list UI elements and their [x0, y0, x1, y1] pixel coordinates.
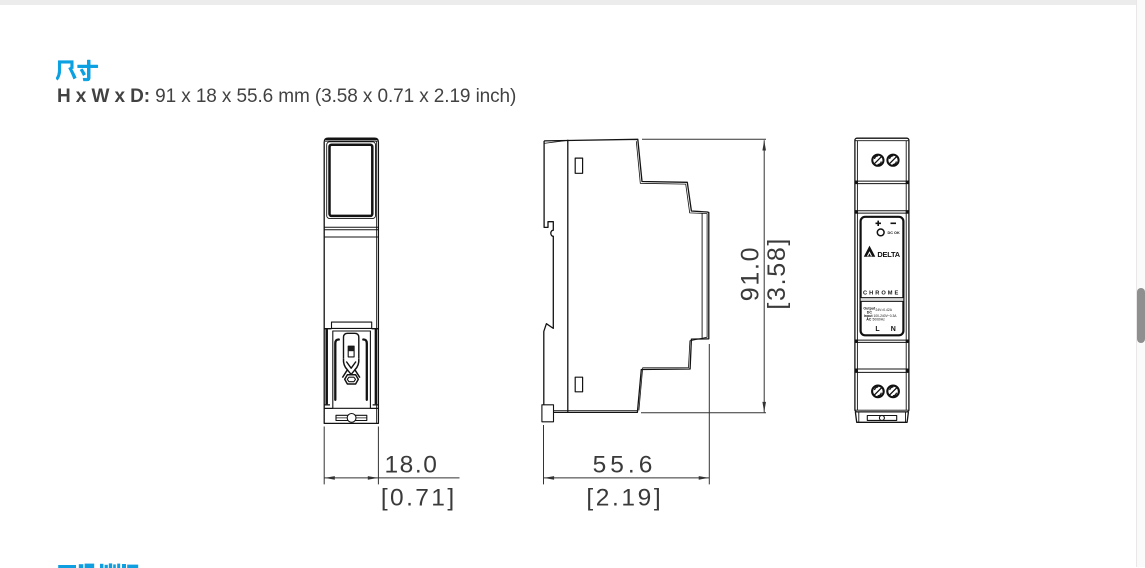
svg-text:50/60Hz: 50/60Hz [873, 318, 886, 322]
svg-text:AC: AC [866, 318, 872, 322]
svg-text:CHROME: CHROME [863, 291, 900, 297]
svg-text:DC OK: DC OK [888, 231, 900, 235]
svg-text:N: N [891, 326, 896, 333]
svg-text:[0.71]: [0.71] [381, 485, 457, 512]
svg-text:DELTA: DELTA [877, 250, 900, 259]
svg-text:18.0: 18.0 [384, 452, 438, 479]
svg-text:55.6: 55.6 [593, 452, 657, 479]
svg-text:[3.58]: [3.58] [763, 237, 791, 310]
svg-text:91.0: 91.0 [736, 246, 764, 301]
svg-text:[2.19]: [2.19] [586, 485, 663, 512]
svg-text:24V=0.42A: 24V=0.42A [876, 308, 893, 312]
svg-text:L: L [875, 326, 880, 333]
